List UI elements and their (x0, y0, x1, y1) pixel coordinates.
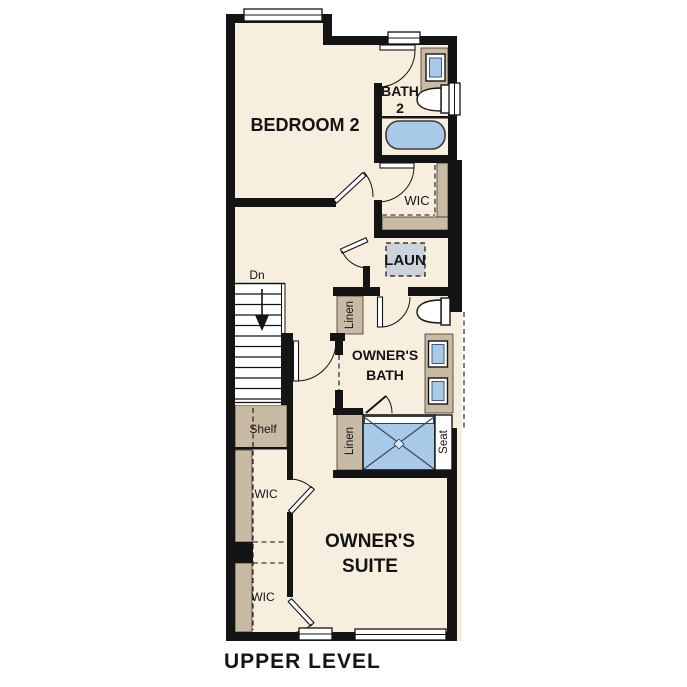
wall-laundry-south-a (333, 287, 380, 296)
shower-entry-glass (365, 417, 434, 424)
wall-laundry-west (363, 266, 370, 287)
bedroom2-label: BEDROOM 2 (250, 115, 359, 135)
wic-top-label: WIC (404, 193, 429, 208)
wall-laundry-south-b (408, 287, 457, 296)
shelf-label: Shelf (249, 422, 277, 436)
wic-left-upper-label: WIC (254, 487, 278, 501)
bathtub (386, 121, 445, 149)
wic-top-bottom-shelf (382, 217, 448, 230)
wall-stair-east (281, 333, 293, 405)
stair-well (235, 283, 285, 405)
wall-bath-suite-divider (333, 470, 457, 478)
wall-wic-top-west (374, 200, 382, 230)
stairs-dn-label: Dn (249, 268, 264, 282)
wall-closet-east-b (287, 512, 293, 597)
seat-label: Seat (438, 429, 450, 453)
linen-upper-label: Linen (344, 301, 356, 329)
laundry-label: LAUN (384, 252, 426, 269)
wic-left-lower-shelf-strip (235, 563, 252, 632)
wall-bath2-south (374, 155, 457, 163)
owners-suite-label-line2: SUITE (342, 556, 398, 577)
owners-bath-label-line1: OWNER'S (352, 347, 418, 363)
wall-closet-east-a (287, 405, 293, 480)
staircase (235, 283, 285, 405)
wall-wic-top-south (374, 230, 457, 238)
wall-owners-bath-west-b (335, 390, 343, 408)
wall-hall-jamb-east (330, 333, 345, 341)
shelf-wic-divider (235, 447, 287, 450)
floor-plan: BEDROOM 2 BATH 2 WIC LAUN Linen OWNER'S … (0, 0, 687, 687)
wall-shower-west (333, 408, 363, 415)
window-bath2-right (449, 83, 460, 115)
page-title: UPPER LEVEL (224, 650, 381, 673)
window-bedroom-top (244, 9, 322, 21)
wall-tub-divider (382, 116, 448, 119)
chase-block (229, 542, 253, 563)
bath2-sink (426, 54, 445, 81)
window-suite-bottom-large (355, 629, 446, 640)
wic-left-upper-shelf-strip (235, 450, 252, 542)
bath2-label-line1: BATH (381, 83, 419, 99)
owners-suite-label-line1: OWNER'S (325, 531, 415, 552)
floor-plan-page: BEDROOM 2 BATH 2 WIC LAUN Linen OWNER'S … (0, 0, 687, 687)
wic-left-lower-label: WIC (251, 590, 275, 604)
window-suite-bottom-small (299, 628, 332, 640)
linen-lower-label: Linen (344, 427, 356, 455)
bath2-label-line2: 2 (396, 100, 404, 116)
owners-bath-label-line2: BATH (366, 367, 404, 383)
wic-top-side-shelf (437, 163, 448, 217)
window-bath2-top (388, 32, 420, 44)
owners-sink-2 (429, 378, 448, 404)
owners-sink-1 (429, 341, 448, 367)
wall-bedroom-south (235, 198, 336, 207)
